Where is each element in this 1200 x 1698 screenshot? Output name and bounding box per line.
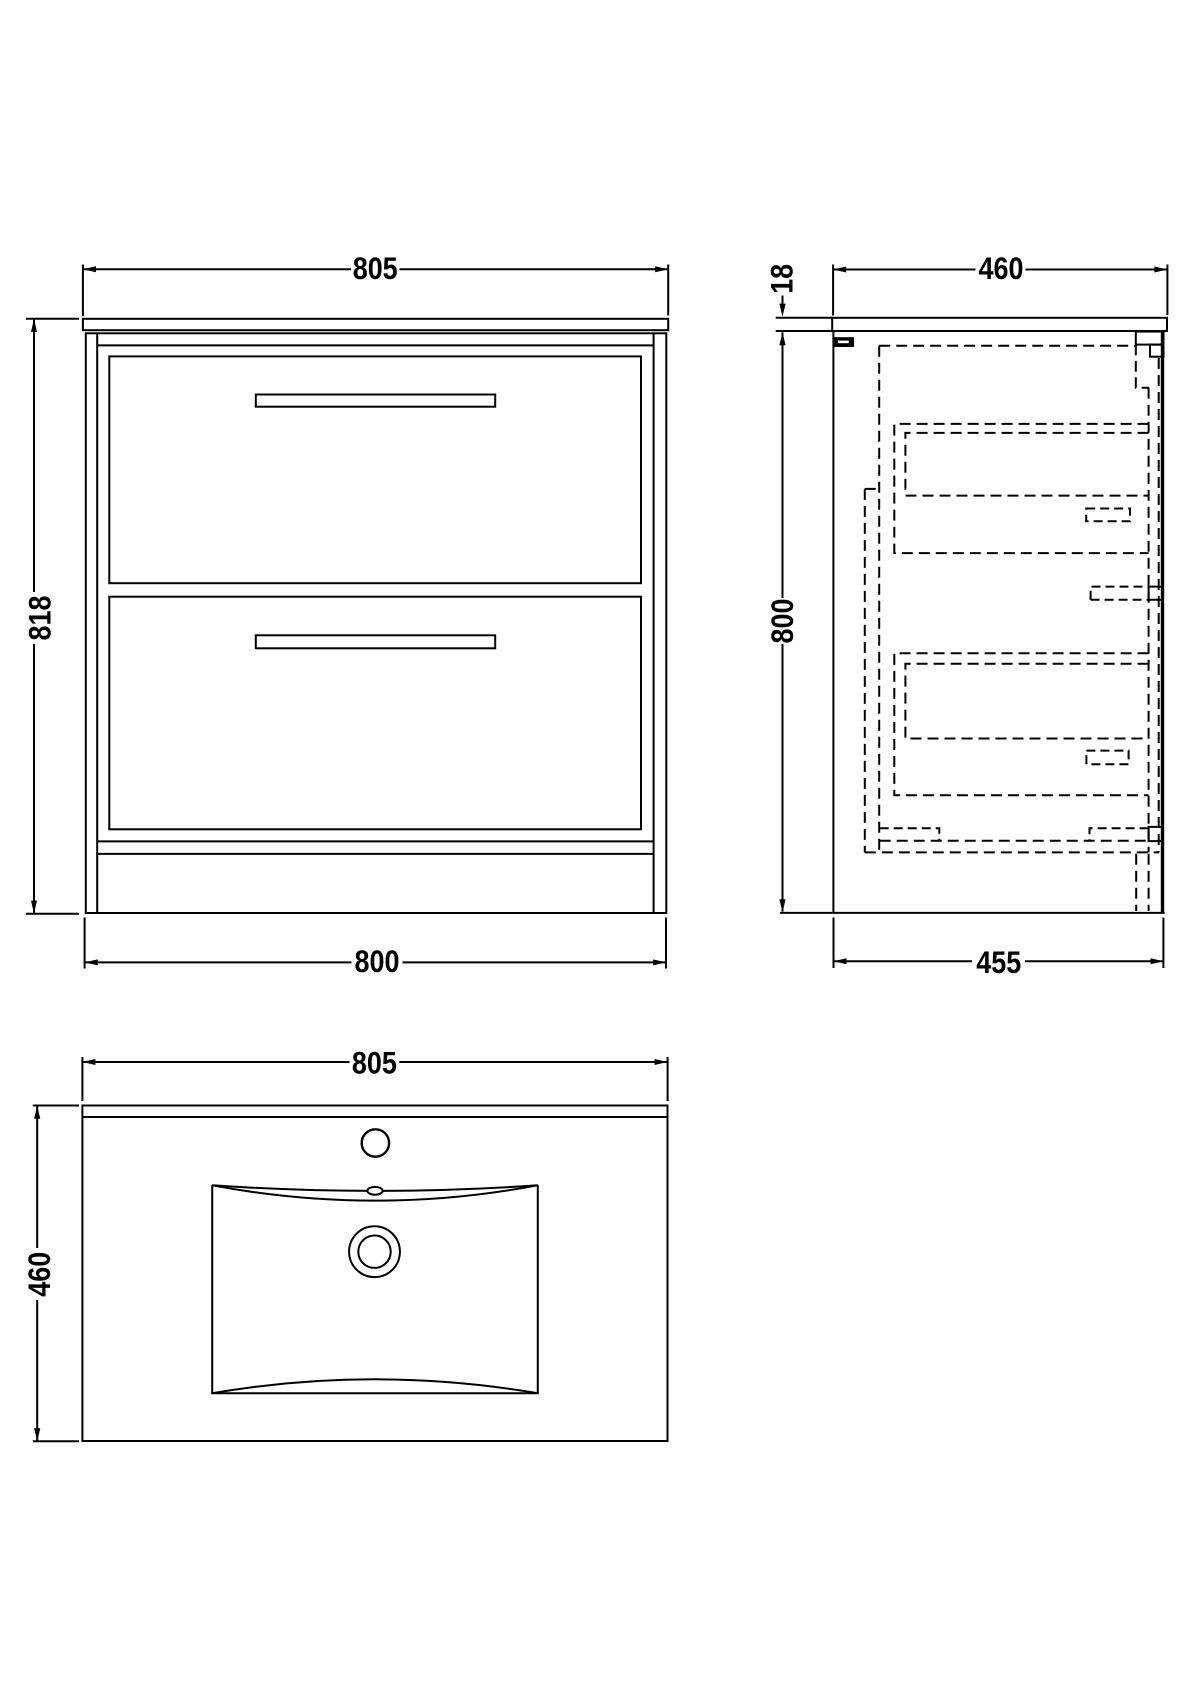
svg-text:460: 460 <box>979 250 1024 286</box>
svg-text:805: 805 <box>352 1045 397 1081</box>
svg-text:805: 805 <box>353 250 398 286</box>
svg-text:455: 455 <box>976 944 1021 980</box>
svg-text:800: 800 <box>355 943 400 979</box>
svg-text:800: 800 <box>764 599 800 644</box>
svg-text:460: 460 <box>21 1252 57 1297</box>
svg-text:18: 18 <box>763 264 799 294</box>
svg-text:818: 818 <box>22 596 58 641</box>
